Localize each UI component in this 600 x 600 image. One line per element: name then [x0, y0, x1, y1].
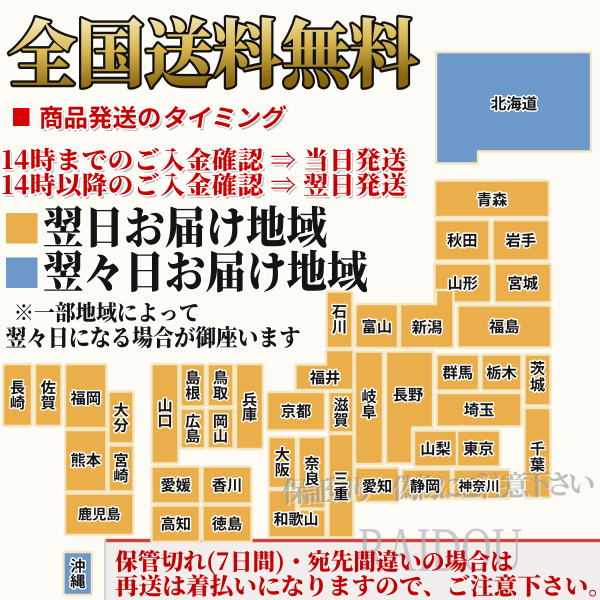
svg-text:RAIDOU: RAIDOU — [358, 514, 522, 585]
